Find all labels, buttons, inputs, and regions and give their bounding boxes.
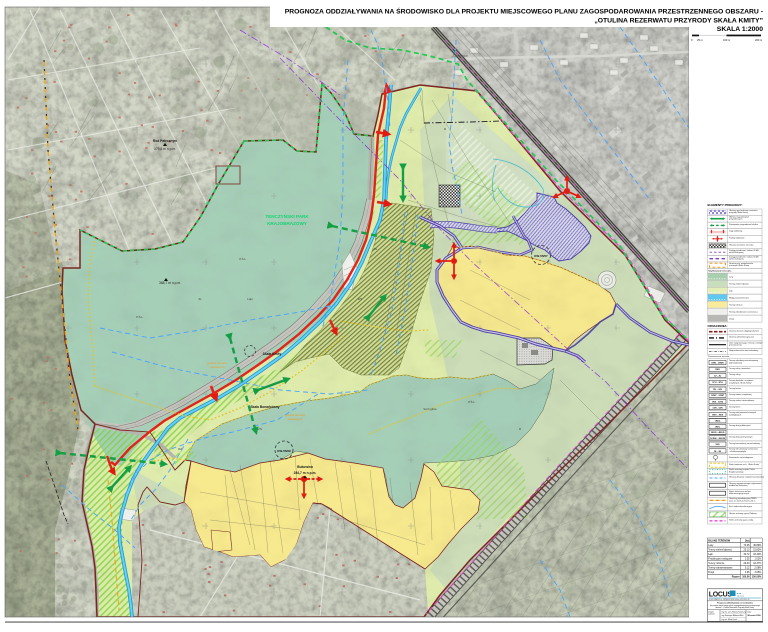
svg-text:18.37%: 18.37% [753, 562, 762, 565]
svg-text:sp. z o.o.: sp. z o.o. [737, 596, 745, 598]
svg-text:Obszary narażone na hałas: Obszary narażone na hałas [729, 244, 753, 246]
svg-text:mgr inż. arch. Bożena Konieczn: mgr inż. arch. Bożena Konieczny [722, 611, 747, 614]
svg-text:autorski:: autorski: [708, 613, 715, 616]
svg-text:- elektroenergetyka: - elektroenergetyka [729, 450, 747, 453]
svg-text:2.35: 2.35 [745, 558, 750, 561]
svg-text:SKALA 1:2000: SKALA 1:2000 [717, 26, 763, 33]
svg-text:3.05%: 3.05% [755, 571, 763, 574]
svg-text:Stanowiska archeologiczne: Stanowiska archeologiczne [729, 456, 754, 459]
svg-text:73.35: 73.35 [744, 544, 751, 547]
svg-text:śródlądowych: śródlądowych [729, 415, 741, 417]
svg-text:Tereny rolnicze: Tereny rolnicze [729, 304, 743, 306]
svg-text:mgr inż. Maria Kurek: mgr inż. Maria Kurek [722, 618, 738, 621]
svg-text:Tereny zainwestowane: Tereny zainwestowane [708, 567, 733, 570]
svg-text:rezerwatu Skała Kmity: rezerwatu Skała Kmity [729, 264, 749, 267]
svg-text:15.82%: 15.82% [753, 548, 762, 551]
svg-text:mgr Katarzyna Biłobran-Mika: mgr Katarzyna Biłobran-Mika [722, 614, 744, 617]
svg-text:OZNACZENIA:: OZNACZENIA: [708, 324, 728, 328]
svg-text:Razem: Razem [732, 576, 740, 579]
svg-text:Tereny komunikacji samochodowe: Tereny komunikacji samochodowej [729, 443, 760, 445]
svg-text:wraz ze strefą ochronną 15 m: wraz ze strefą ochronną 15 m [729, 499, 756, 502]
svg-text:Strefa nadzoru arch. „Skała Km: Strefa nadzoru arch. „Skała Kmity” [729, 463, 760, 466]
svg-text:1E - 2E: 1E - 2E [714, 451, 722, 453]
svg-text:Użytkowanie terenów:: Użytkowanie terenów: [709, 270, 732, 273]
svg-text:„OTULINA REZERWATU PRZYRODY SK: „OTULINA REZERWATU PRZYRODY SKAŁA KMITY” [594, 18, 763, 25]
svg-text:przyrodniczych: przyrodniczych [729, 219, 742, 221]
svg-text:Wody powierzchniowe: Wody powierzchniowe [729, 297, 750, 299]
svg-text:1KDW - 2KDW: 1KDW - 2KDW [710, 438, 726, 440]
svg-text:Obszary bezpośr. zagrożenia po: Obszary bezpośr. zagrożenia powodzią [729, 477, 765, 479]
svg-text:Łąki: Łąki [708, 553, 713, 556]
svg-text:1ZL - 8ZL: 1ZL - 8ZL [713, 389, 723, 391]
svg-text:18.40%: 18.40% [753, 553, 762, 556]
svg-text:1U - 2U: 1U - 2U [714, 375, 722, 377]
svg-text:Punkty widokowe: Punkty widokowe [729, 237, 745, 240]
svg-text:Granica obszaru objętego plane: Granica obszaru objętego planem [729, 329, 759, 332]
svg-text:25.13: 25.13 [744, 548, 751, 551]
svg-text:obszaru - „Otulina Rezerwatu P: obszaru - „Otulina Rezerwatu Przyrody Sk… [715, 606, 754, 609]
svg-text:elektroenergetycznych: elektroenergetycznych [729, 492, 749, 495]
svg-text:2.08%: 2.08% [755, 567, 763, 570]
svg-text:1MN - 16MN: 1MN - 16MN [711, 362, 724, 364]
svg-text:PROGNOZA ODDZIAŁYWANIA NA ŚROD: PROGNOZA ODDZIAŁYWANIA NA ŚRODOWISKO DLA… [285, 7, 763, 16]
svg-text:Powiązania przyrodnicze lokaln: Powiązania przyrodnicze lokalne [729, 224, 759, 226]
svg-text:100 m: 100 m [723, 38, 730, 42]
svg-text:Tereny rolnicze: Tereny rolnicze [708, 562, 725, 565]
svg-text:Ciąg widokowy: Ciąg widokowy [729, 231, 742, 233]
svg-text:Data:: Data: [748, 610, 753, 613]
svg-text:przeznaczeniu: przeznaczeniu [729, 345, 742, 347]
svg-text:Drogi: Drogi [729, 318, 734, 320]
svg-text:1PU - 2PU: 1PU - 2PU [712, 382, 723, 384]
svg-text:1WS - 3WS: 1WS - 3WS [712, 414, 724, 416]
svg-text:Sieć wodno-kanalizacyjna: Sieć wodno-kanalizacyjna [729, 506, 753, 508]
svg-text:Tereny usług: Tereny usług [729, 374, 740, 376]
svg-text:Drogi: Drogi [708, 571, 714, 574]
svg-text:1RZ - 11RZ: 1RZ - 11RZ [712, 401, 724, 403]
svg-text:1MU: 1MU [715, 369, 720, 371]
svg-text:Lasy: Lasy [729, 276, 733, 278]
svg-text:Granica administracyjna wsi: Granica administracyjna wsi [729, 336, 754, 339]
svg-text:4.96: 4.96 [745, 571, 750, 574]
svg-text:Tereny leśne: Tereny leśne [729, 406, 741, 408]
svg-text:Krajobrazowego: Krajobrazowego [729, 472, 744, 474]
svg-text:100.00%: 100.00% [752, 576, 762, 579]
svg-text:uciążliwych „Strefa Kmity”: uciążliwych „Strefa Kmity” [729, 381, 752, 384]
svg-text:Tereny zieleni łąkowej: Tereny zieleni łąkowej [729, 283, 749, 285]
svg-text:Tereny usług i mieszkań: Tereny usług i mieszkań [729, 368, 750, 370]
svg-text:Tereny dróg publicznych: Tereny dróg publicznych [729, 425, 751, 427]
svg-text:30.72: 30.72 [744, 553, 751, 556]
svg-text:BILANS TERENÓW: BILANS TERENÓW [708, 539, 731, 542]
svg-text:1KS: 1KS [715, 444, 720, 446]
svg-text:przyrody Skała Kmity: przyrody Skała Kmity [729, 211, 748, 214]
svg-text:ELEMENTY PROGNOZY:: ELEMENTY PROGNOZY: [708, 203, 743, 207]
svg-text:Tereny zabudowane i przeznacz.: Tereny zabudowane i przeznacz. [729, 311, 759, 313]
svg-text:160.06: 160.06 [742, 576, 750, 579]
svg-text:1.02%: 1.02% [755, 558, 763, 561]
svg-text:Obszar ochrony ujęcia Rudawy: Obszar ochrony ujęcia Rudawy [729, 513, 757, 515]
svg-text:Tereny lasów: Tereny lasów [729, 388, 741, 390]
svg-text:Strefa ochrony ujęcia wody: Strefa ochrony ujęcia wody [729, 519, 753, 522]
svg-text:29.43: 29.43 [744, 562, 751, 565]
svg-text:Tereny zieleni łąkowej: Tereny zieleni łąkowej [708, 548, 732, 551]
svg-text:Nieprzekraczalna linia zabudow: Nieprzekraczalna linia zabudowy [729, 350, 758, 352]
svg-text:45.86%: 45.86% [753, 544, 762, 547]
svg-text:Tereny dróg wewnętrznych: Tereny dróg wewnętrznych [729, 436, 753, 439]
svg-text:*Przeznaczenie terenów:: *Przeznaczenie terenów: [708, 355, 731, 358]
svg-text:25 m: 25 m [697, 38, 703, 42]
svg-text:od linii kolejowej: od linii kolejowej [729, 259, 744, 261]
svg-text:5.12: 5.12 [745, 567, 750, 570]
svg-text:Lasy: Lasy [708, 544, 714, 547]
svg-text:[ha]: [ha] [745, 539, 750, 542]
svg-text:1ZNP - 2ZNP: 1ZNP - 2ZNP [711, 395, 725, 397]
svg-text:Tereny zieleni nieurządzonej: Tereny zieleni nieurządzonej [729, 400, 755, 402]
svg-text:1KDL: 1KDL [715, 426, 721, 428]
svg-text:1KDZ: 1KDZ [715, 421, 721, 423]
svg-text:od linii kolejowej: od linii kolejowej [729, 252, 744, 254]
svg-text:wzdłuż linii kolejowej: wzdłuż linii kolejowej [729, 485, 748, 487]
svg-text:LOCUS: LOCUS [709, 592, 733, 599]
svg-text:jednorodzinnej: jednorodzinnej [728, 363, 743, 365]
svg-text:200 m: 200 m [755, 38, 762, 42]
svg-text:Tereny zieleni urządzonej: Tereny zieleni urządzonej [729, 394, 752, 396]
svg-text:1KDD - 4KDD: 1KDD - 4KDD [711, 431, 725, 434]
svg-text:Łąki: Łąki [729, 290, 733, 292]
svg-text:Produkcyjno-usługowe: Produkcyjno-usługowe [708, 558, 733, 561]
svg-text:Wrzesień 2009: Wrzesień 2009 [748, 615, 761, 617]
svg-text:1ZN - 5ZN: 1ZN - 5ZN [712, 408, 723, 410]
